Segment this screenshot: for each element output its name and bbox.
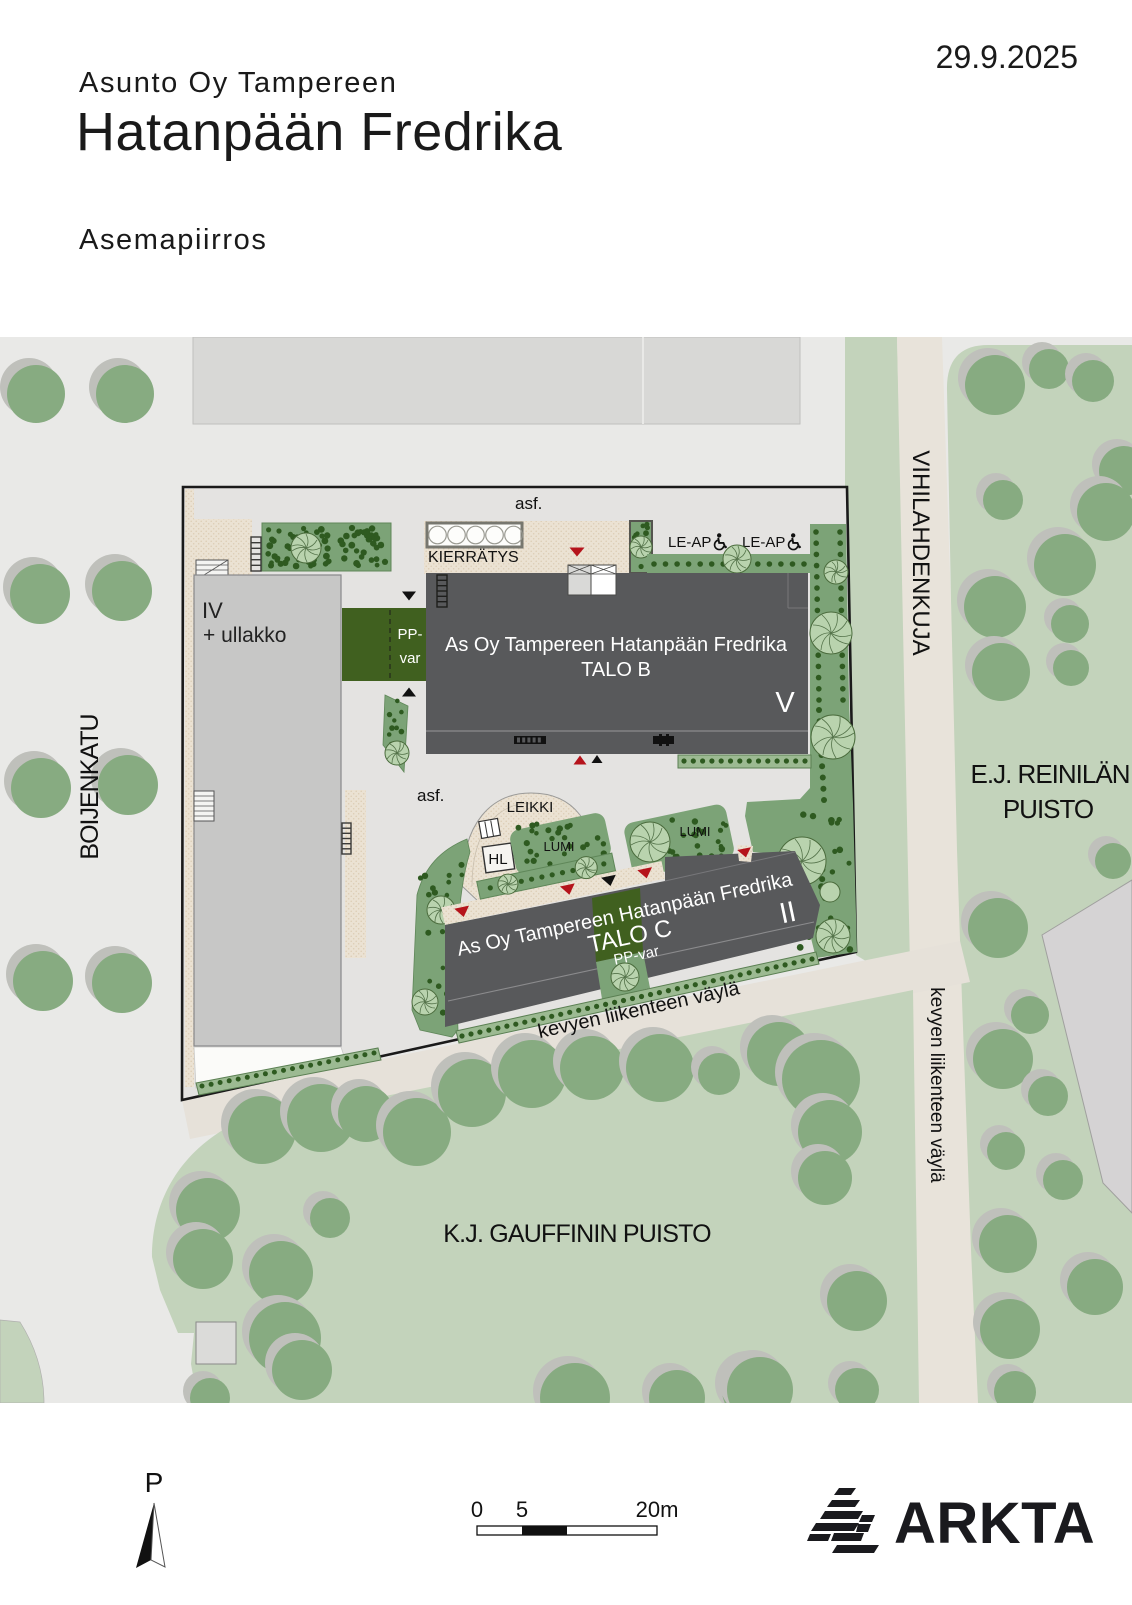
- svg-text:LE-AP: LE-AP: [668, 534, 711, 551]
- svg-text:var: var: [400, 650, 421, 667]
- svg-text:Asunto Oy Tampereen: Asunto Oy Tampereen: [79, 67, 397, 99]
- svg-text:PP-: PP-: [397, 626, 422, 643]
- svg-text:0: 0: [471, 1497, 483, 1522]
- svg-text:5: 5: [516, 1497, 528, 1522]
- svg-text:LUMI: LUMI: [679, 824, 710, 839]
- svg-text:ARKTA: ARKTA: [894, 1491, 1095, 1556]
- svg-text:E.J. REINILÄN: E.J. REINILÄN: [971, 759, 1130, 789]
- svg-text:Asemapiirros: Asemapiirros: [79, 224, 267, 256]
- svg-text:V: V: [775, 687, 795, 719]
- svg-text:LE-AP: LE-AP: [742, 534, 785, 551]
- svg-text:Hatanpään Fredrika: Hatanpään Fredrika: [76, 102, 563, 162]
- svg-text:29.9.2025: 29.9.2025: [936, 39, 1078, 75]
- svg-text:PUISTO: PUISTO: [1003, 794, 1093, 824]
- svg-text:K.J. GAUFFININ PUISTO: K.J. GAUFFININ PUISTO: [443, 1220, 711, 1248]
- svg-text:kevyen liikenteen väylä: kevyen liikenteen väylä: [926, 987, 947, 1183]
- svg-text:LEIKKI: LEIKKI: [507, 799, 554, 816]
- svg-text:LUMI: LUMI: [543, 839, 574, 854]
- svg-text:VIHILAHDENKUJA: VIHILAHDENKUJA: [907, 450, 934, 655]
- svg-text:asf.: asf.: [515, 494, 542, 513]
- svg-text:KIERRÄTYS: KIERRÄTYS: [428, 548, 519, 566]
- svg-text:+ ullakko: + ullakko: [203, 624, 286, 647]
- svg-text:HL: HL: [488, 851, 507, 868]
- svg-text:IV: IV: [202, 598, 223, 623]
- svg-text:20m: 20m: [636, 1497, 679, 1522]
- svg-text:BOIJENKATU: BOIJENKATU: [76, 714, 104, 859]
- svg-text:asf.: asf.: [417, 786, 444, 805]
- svg-text:As Oy Tampereen Hatanpään Fred: As Oy Tampereen Hatanpään Fredrika: [445, 634, 788, 656]
- svg-text:TALO B: TALO B: [581, 659, 651, 681]
- svg-text:P: P: [145, 1467, 164, 1498]
